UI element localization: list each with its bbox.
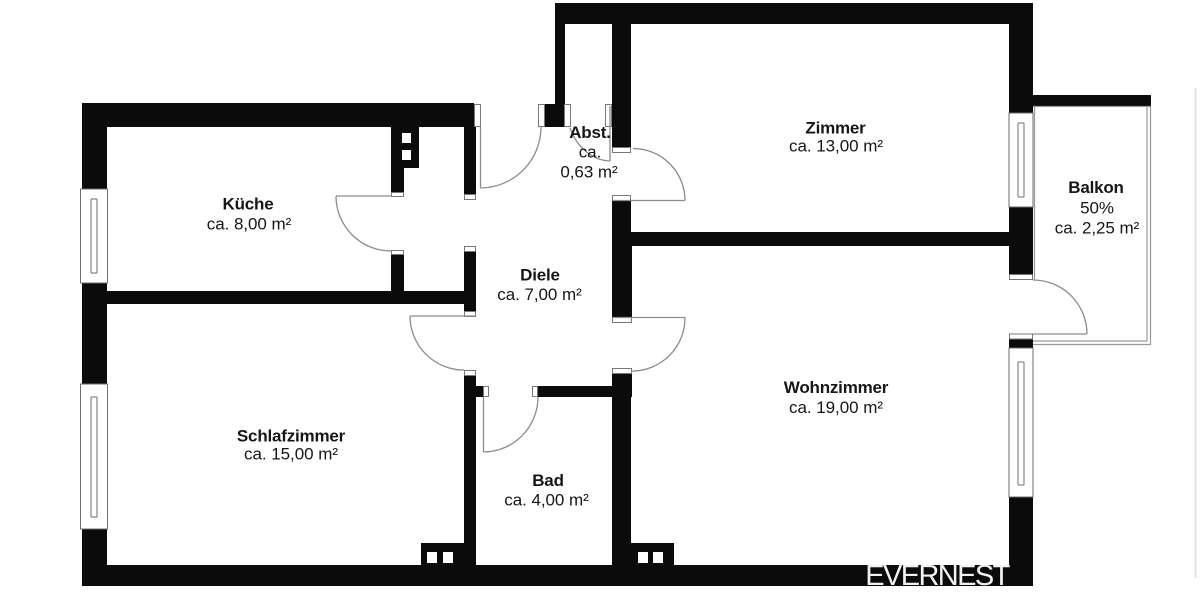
- svg-text:Abst.: Abst.: [569, 123, 611, 142]
- svg-text:ca. 7,00 m²: ca. 7,00 m²: [497, 285, 582, 304]
- svg-text:Bad: Bad: [532, 471, 564, 490]
- svg-text:Schlafzimmer: Schlafzimmer: [237, 427, 346, 446]
- svg-text:ca.: ca.: [579, 143, 602, 162]
- svg-text:Küche: Küche: [223, 195, 274, 214]
- svg-text:ca. 19,00 m²: ca. 19,00 m²: [789, 398, 883, 417]
- svg-text:Diele: Diele: [520, 266, 560, 285]
- svg-text:ca. 4,00 m²: ca. 4,00 m²: [504, 491, 589, 510]
- svg-text:ca. 15,00 m²: ca. 15,00 m²: [244, 445, 338, 464]
- svg-text:50%: 50%: [1080, 199, 1114, 218]
- svg-text:EVERNEST: EVERNEST: [865, 560, 1010, 592]
- svg-text:ca. 13,00 m²: ca. 13,00 m²: [789, 137, 883, 156]
- svg-text:ca. 2,25 m²: ca. 2,25 m²: [1055, 219, 1140, 238]
- svg-text:0,63 m²: 0,63 m²: [560, 163, 618, 182]
- svg-text:Zimmer: Zimmer: [805, 119, 866, 138]
- svg-text:ca. 8,00 m²: ca. 8,00 m²: [207, 215, 292, 234]
- svg-text:Balkon: Balkon: [1068, 178, 1123, 197]
- svg-text:Wohnzimmer: Wohnzimmer: [784, 378, 889, 397]
